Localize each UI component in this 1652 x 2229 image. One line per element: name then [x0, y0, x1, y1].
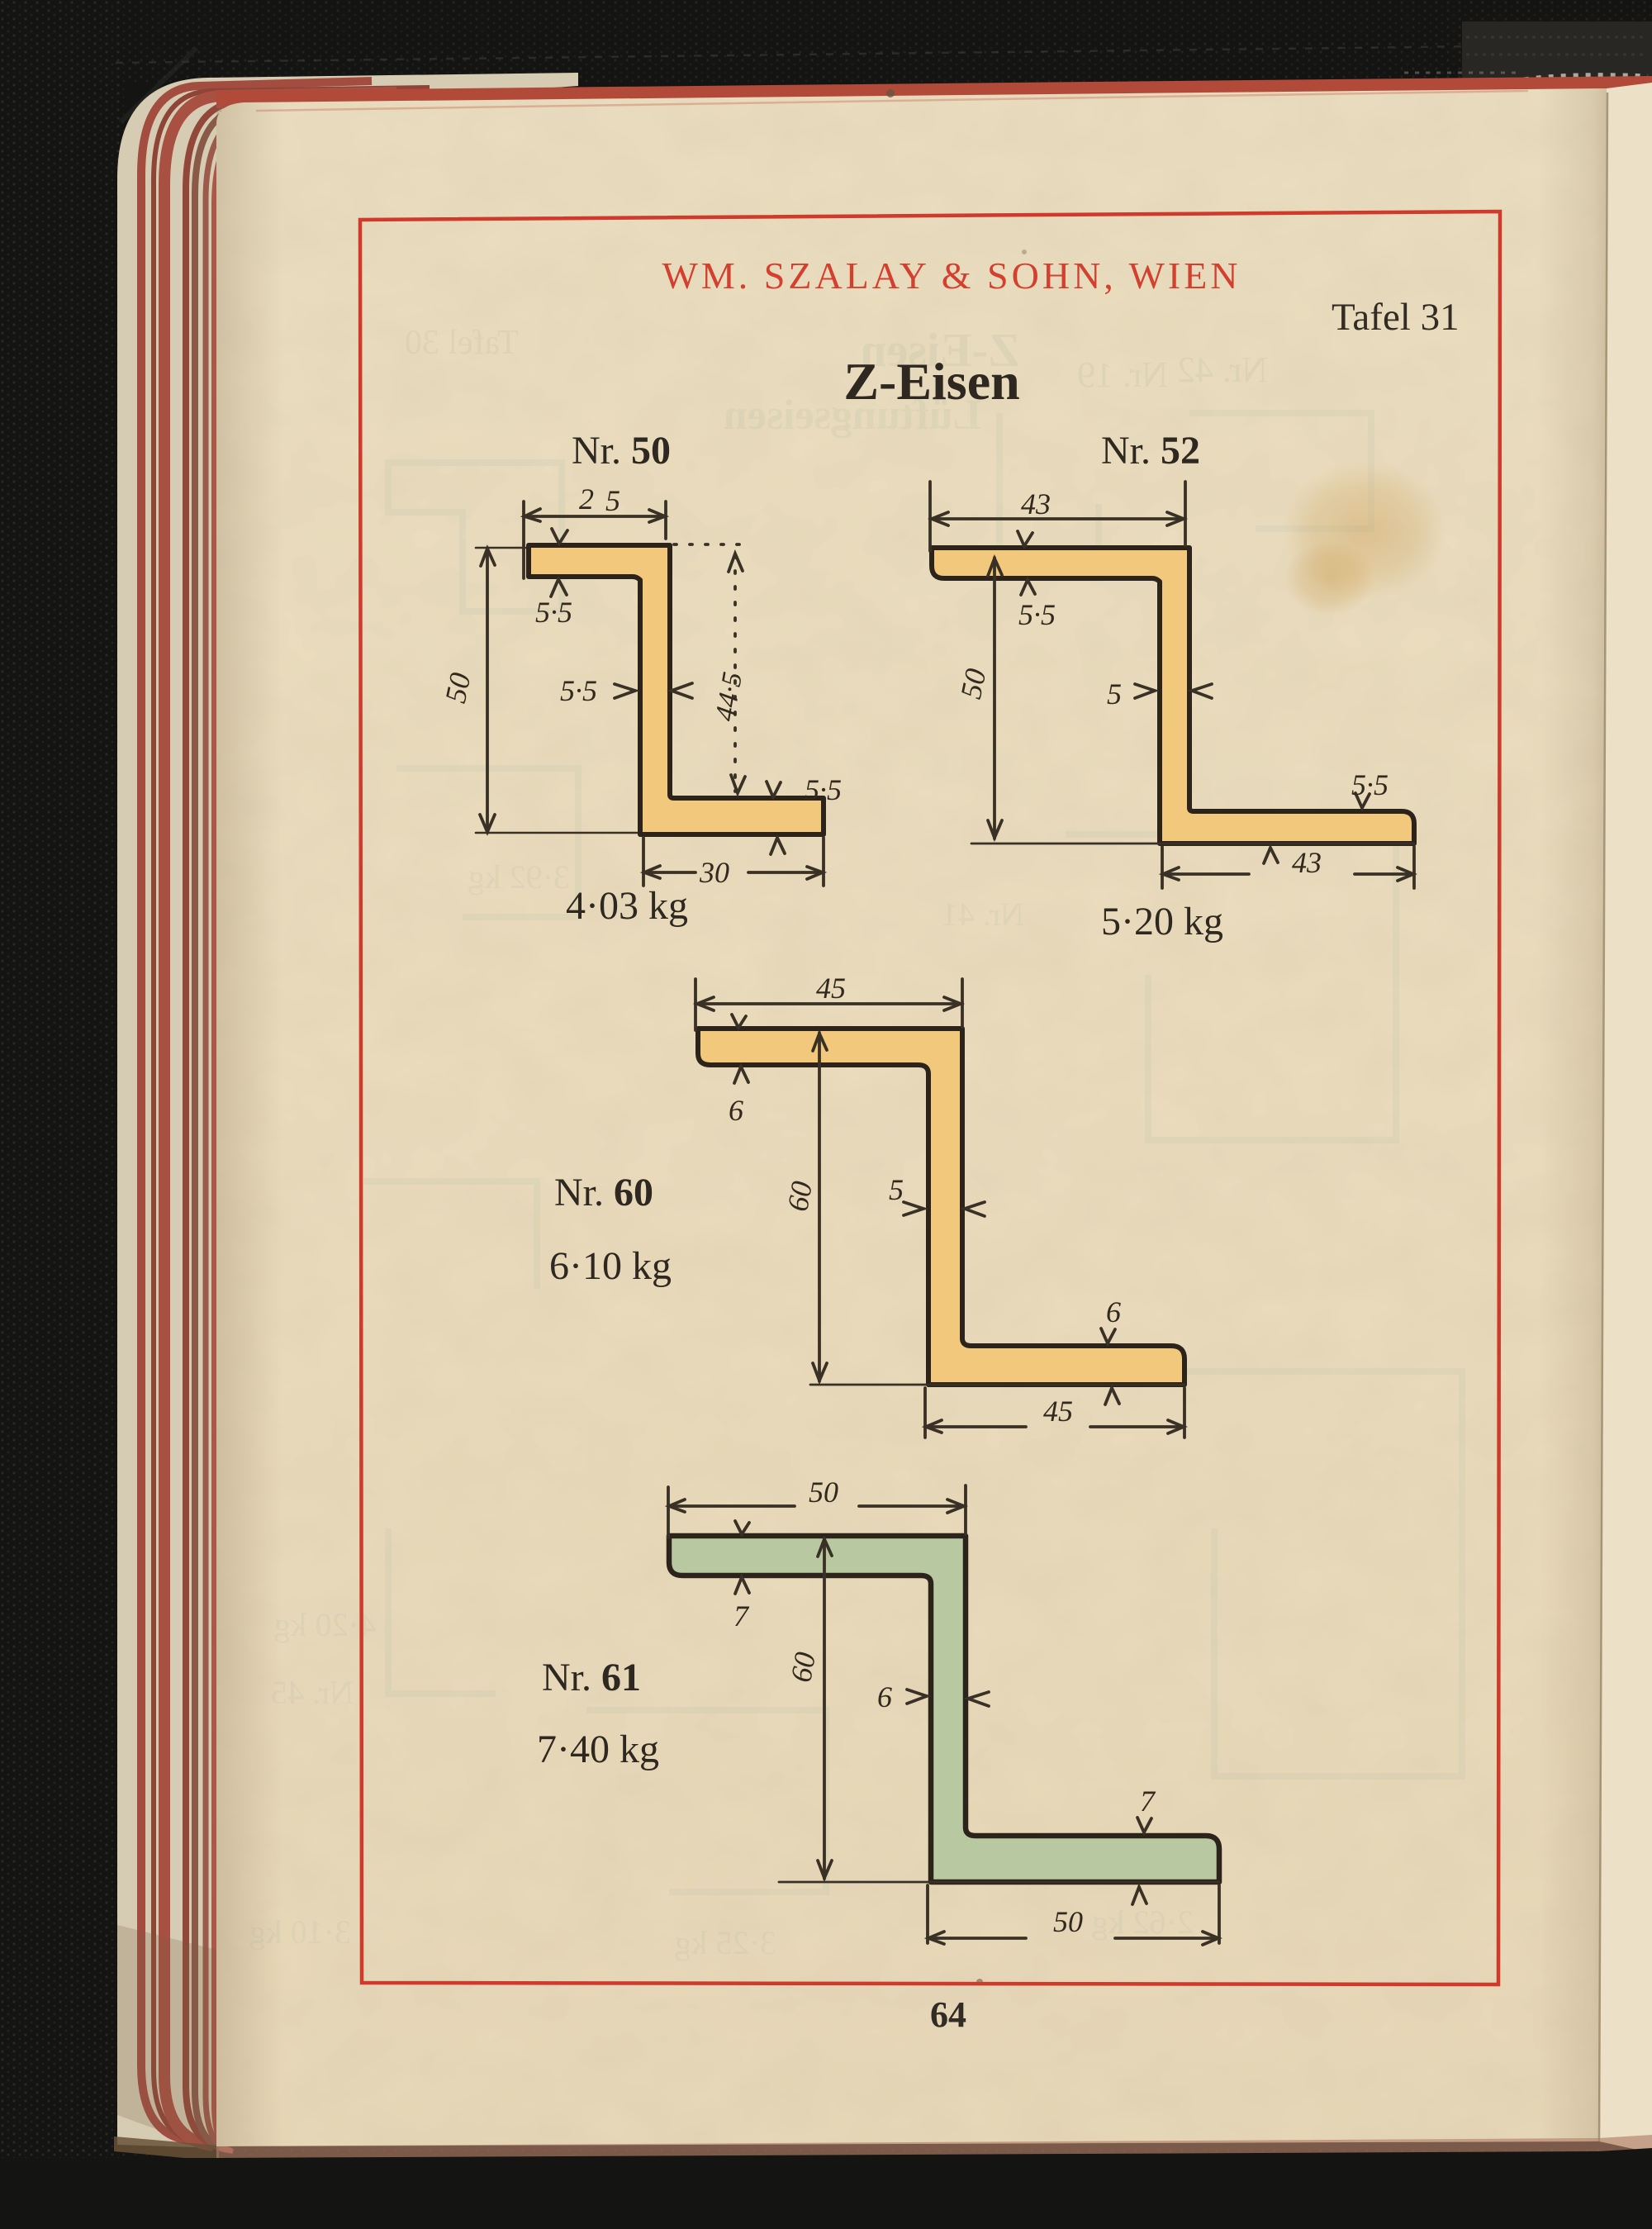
svg-text:6: 6 [1106, 1295, 1121, 1328]
svg-text:5·5: 5·5 [805, 773, 842, 806]
svg-text:6: 6 [729, 1094, 743, 1127]
svg-text:Nr. 42: Nr. 42 [1177, 349, 1268, 390]
svg-text:6·10 kg: 6·10 kg [549, 1244, 672, 1288]
svg-text:7·40 kg: 7·40 kg [537, 1728, 659, 1771]
svg-text:7: 7 [733, 1599, 750, 1633]
svg-text:6: 6 [877, 1680, 892, 1713]
svg-text:5·20 kg: 5·20 kg [1101, 900, 1223, 943]
svg-text:WM. SZALAY & SOHN, WIEN: WM. SZALAY & SOHN, WIEN [662, 254, 1241, 297]
svg-text:45: 45 [1043, 1395, 1073, 1428]
svg-text:30: 30 [699, 856, 729, 889]
svg-text:3·10 kg: 3·10 kg [249, 1913, 351, 1951]
svg-text:64: 64 [930, 1994, 966, 2035]
svg-text:5: 5 [605, 484, 620, 517]
svg-text:Nr. 50: Nr. 50 [572, 429, 671, 473]
svg-text:5: 5 [1107, 677, 1122, 711]
svg-text:43: 43 [1021, 487, 1051, 520]
svg-text:5·5: 5·5 [1018, 598, 1056, 631]
svg-text:50: 50 [809, 1476, 838, 1509]
svg-text:60: 60 [784, 1650, 822, 1685]
svg-text:3·25 kg: 3·25 kg [675, 1924, 776, 1961]
svg-text:Nr. 41: Nr. 41 [942, 896, 1024, 933]
svg-text:7: 7 [1140, 1785, 1156, 1818]
svg-text:Nr. 60: Nr. 60 [554, 1171, 653, 1214]
svg-text:5: 5 [889, 1173, 904, 1206]
svg-text:Nr. 52: Nr. 52 [1101, 429, 1200, 473]
svg-text:4·03 kg: 4·03 kg [566, 884, 688, 928]
svg-text:Nr. 61: Nr. 61 [542, 1656, 641, 1699]
svg-text:5·5: 5·5 [1351, 768, 1389, 801]
svg-text:45: 45 [816, 972, 846, 1005]
svg-text:Tafel 31: Tafel 31 [1332, 296, 1460, 339]
svg-text:5·5: 5·5 [560, 674, 597, 707]
svg-text:Nr. 45: Nr. 45 [271, 1674, 354, 1711]
svg-text:Tafel 30: Tafel 30 [405, 324, 519, 362]
svg-text:50: 50 [1053, 1905, 1083, 1938]
svg-text:Z-Eisen: Z-Eisen [843, 352, 1019, 411]
svg-text:2: 2 [579, 482, 594, 516]
svg-text:2·62 kg: 2·62 kg [1092, 1903, 1194, 1941]
svg-text:5·5: 5·5 [535, 596, 572, 629]
svg-text:60: 60 [781, 1179, 819, 1214]
svg-text:Nr. 19: Nr. 19 [1077, 354, 1168, 395]
svg-text:43: 43 [1292, 846, 1322, 879]
svg-text:3·92 kg: 3·92 kg [468, 858, 570, 896]
